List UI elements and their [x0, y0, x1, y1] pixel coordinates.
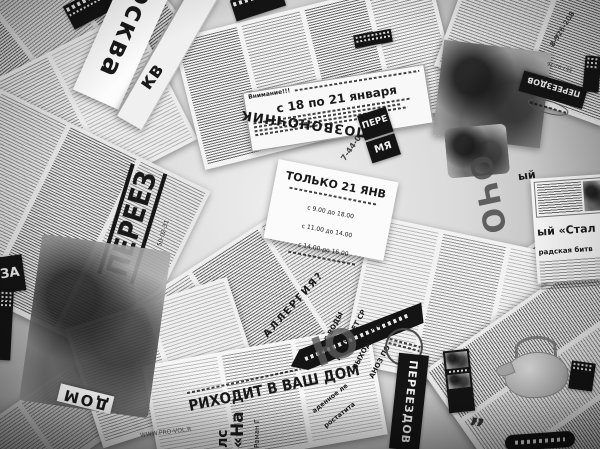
newspaper-collage-photo: осква кв 8-926-208 7-44-06 ПЕРЕЕЗДОВ 557…	[0, 0, 600, 449]
unreadable-white-text	[0, 300, 11, 303]
unreadable-white-text	[233, 0, 280, 7]
pereezdov-vertical-text: ПЕРЕЕЗДОВ	[399, 360, 419, 445]
unreadable-white-text	[515, 437, 565, 444]
ad-box-text	[537, 182, 583, 215]
unreadable-white-text	[587, 62, 599, 65]
mya-block-text: МЯ	[373, 141, 393, 156]
strip-photo	[447, 373, 470, 389]
photo-collage-left	[19, 234, 171, 418]
scrap-stalingrad: ый «Стал радская битв	[530, 173, 600, 284]
ls-vertical-headline: лс	[216, 424, 231, 448]
body-text	[539, 256, 600, 289]
pere-block-text: ПЕРЕ	[361, 115, 389, 132]
ad-box-photo	[583, 180, 600, 212]
headline-bar-fragment	[582, 55, 600, 92]
unreadable-white-text	[0, 296, 12, 299]
left-edge-banner	[0, 290, 14, 361]
unreadable-white-text	[0, 292, 12, 295]
unreadable-white-text	[0, 304, 11, 307]
headline-bar-fragment	[568, 360, 596, 391]
na-vertical-headline: «На	[230, 402, 248, 448]
stalingrad-subhead: радская битв	[538, 245, 593, 257]
roman-vertical-text: Роман Г	[254, 400, 261, 448]
scrap-tolko-ad: ТОЛЬКО 21 ЯНВ с 9.00 до 18.00 с 11.00 до…	[263, 159, 398, 261]
kettle-body	[503, 350, 570, 400]
unreadable-white-text	[573, 367, 593, 372]
kettle-sketch	[496, 333, 576, 404]
unreadable-white-text	[587, 66, 599, 69]
unreadable-white-text	[587, 58, 599, 61]
strip-photo	[445, 351, 469, 369]
za-text: ЗА	[0, 266, 20, 282]
